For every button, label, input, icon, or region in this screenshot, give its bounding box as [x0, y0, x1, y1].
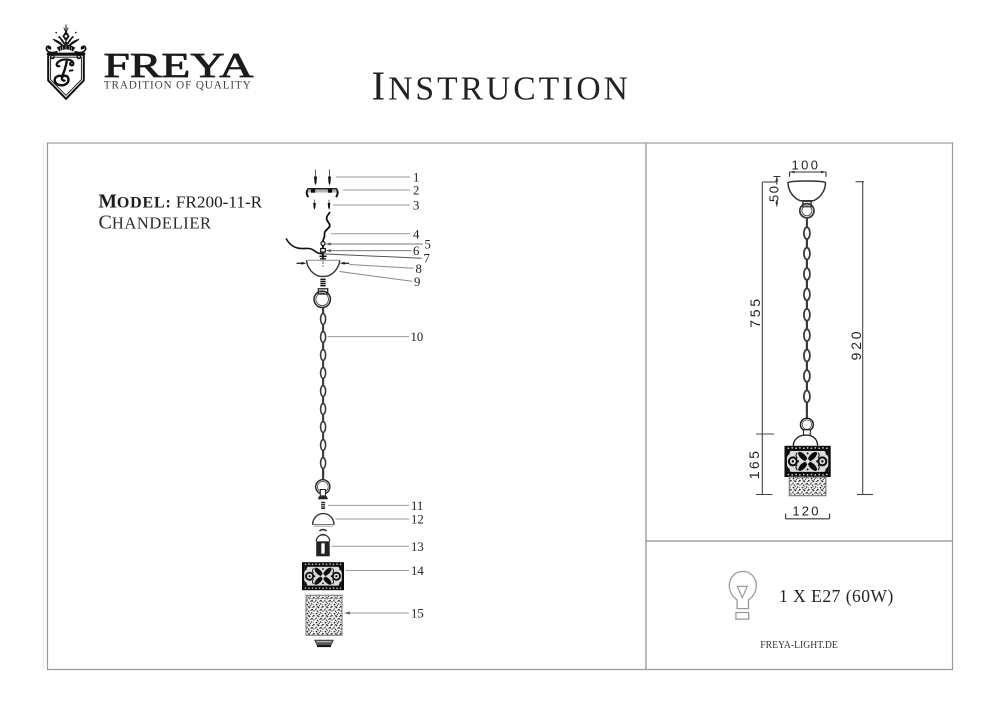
svg-text:2: 2 [413, 184, 419, 198]
svg-text:TRADITION OF QUALITY: TRADITION OF QUALITY [104, 79, 251, 91]
svg-text:CHANDELIER: CHANDELIER [99, 212, 212, 234]
svg-text:10: 10 [411, 330, 424, 344]
svg-text:50: 50 [767, 184, 782, 202]
svg-text:4: 4 [413, 227, 420, 241]
svg-text:MODEL: FR200-11-R: MODEL: FR200-11-R [99, 192, 263, 213]
svg-text:165: 165 [746, 449, 762, 480]
svg-text:920: 920 [848, 329, 864, 361]
svg-text:5: 5 [425, 237, 431, 251]
svg-text:8: 8 [416, 262, 422, 276]
svg-text:7: 7 [424, 252, 431, 266]
svg-text:120: 120 [792, 504, 820, 519]
svg-text:15: 15 [411, 607, 424, 621]
svg-text:11: 11 [411, 499, 423, 513]
svg-text:755: 755 [747, 296, 763, 328]
svg-text:14: 14 [411, 564, 424, 578]
svg-text:FREYA-LIGHT.DE: FREYA-LIGHT.DE [760, 639, 838, 651]
svg-text:1 X E27 (60W): 1 X E27 (60W) [779, 586, 894, 606]
svg-text:12: 12 [411, 513, 424, 527]
svg-text:9: 9 [414, 275, 420, 289]
svg-text:1: 1 [413, 171, 419, 185]
svg-text:3: 3 [413, 199, 419, 213]
svg-text:13: 13 [411, 540, 424, 554]
svg-text:100: 100 [792, 157, 821, 172]
svg-text:6: 6 [413, 244, 420, 258]
